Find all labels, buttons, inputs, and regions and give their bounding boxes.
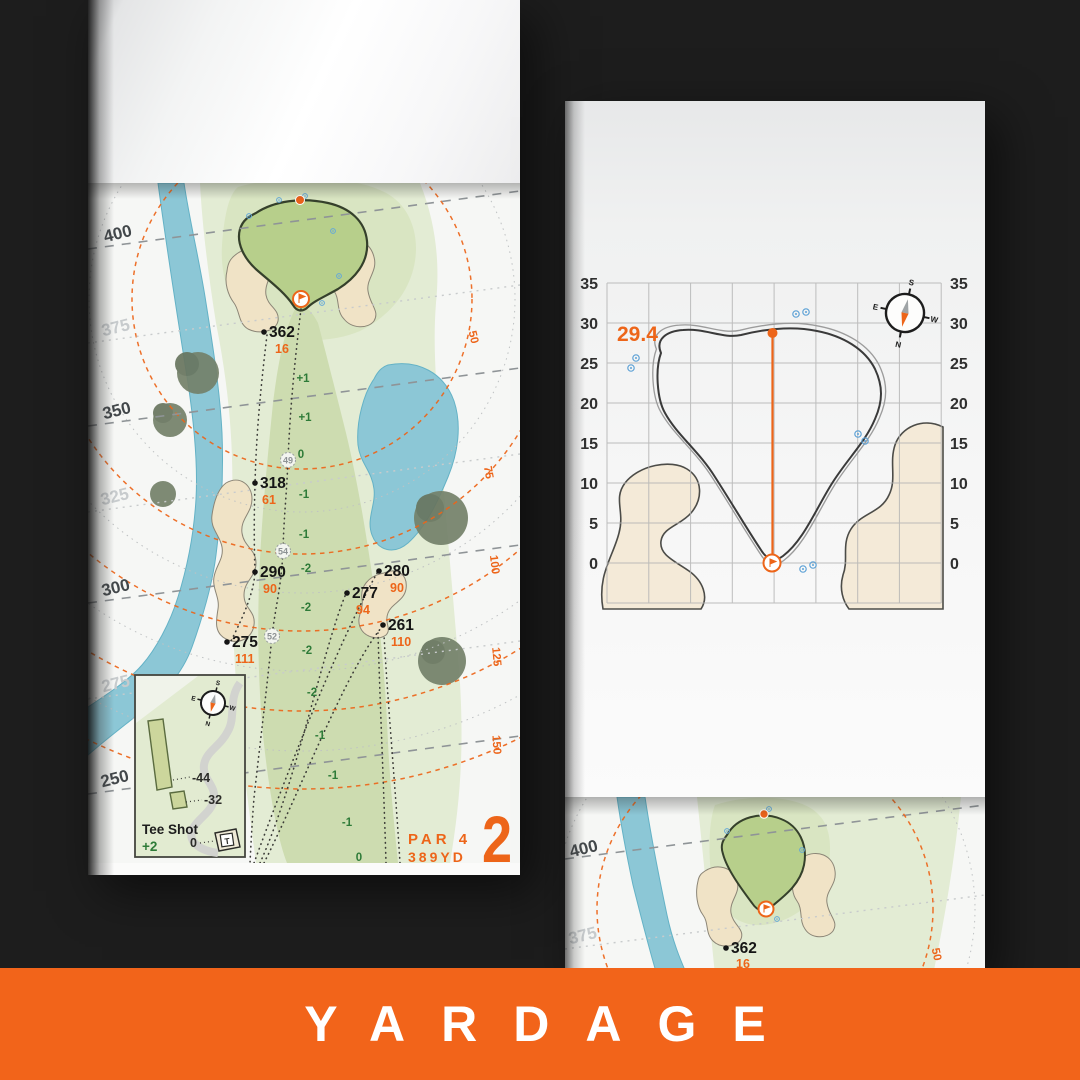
hole-map-page: 49 54 52 +1 +1 0 -1 -1 -2 -2 -2 -2 -1 -1… — [88, 183, 520, 875]
svg-text:0: 0 — [298, 449, 304, 461]
page-bottom-margin — [88, 863, 520, 875]
width-52: 52 — [267, 632, 277, 642]
svg-text:75: 75 — [481, 465, 495, 480]
svg-text:275: 275 — [232, 634, 258, 651]
svg-text:110: 110 — [391, 635, 411, 649]
svg-text:0: 0 — [356, 852, 362, 864]
svg-text:-1: -1 — [299, 489, 310, 501]
pin-marker — [759, 902, 774, 917]
svg-text:20: 20 — [580, 396, 598, 413]
svg-text:61: 61 — [262, 493, 276, 507]
svg-text:362: 362 — [731, 940, 757, 957]
inset-score: +2 — [142, 839, 157, 854]
flipped-blank-page — [88, 0, 520, 184]
svg-text:125: 125 — [489, 647, 503, 668]
svg-text:50: 50 — [466, 330, 481, 345]
svg-text:0: 0 — [589, 556, 598, 573]
svg-text:-1: -1 — [315, 730, 326, 742]
svg-text:150: 150 — [489, 735, 502, 755]
axis-labels-left: 3530 2520 1510 50 — [580, 276, 598, 573]
inset-title: Tee Shot — [142, 822, 199, 837]
svg-text:362: 362 — [269, 324, 295, 341]
svg-text:10: 10 — [580, 476, 598, 493]
svg-text:-1: -1 — [342, 817, 353, 829]
chart-compass: S N E W — [865, 271, 946, 356]
svg-text:-2: -2 — [302, 645, 312, 657]
green-depth-chart: 3530 2520 1510 50 3530 2520 1510 50 — [565, 101, 985, 797]
svg-text:290: 290 — [260, 564, 286, 581]
svg-text:30: 30 — [580, 316, 598, 333]
svg-text:-2: -2 — [307, 687, 317, 699]
svg-text:-2: -2 — [301, 602, 311, 614]
tee-box-small — [170, 791, 187, 809]
svg-text:261: 261 — [388, 617, 414, 634]
hole-map: 49 54 52 +1 +1 0 -1 -1 -2 -2 -2 -2 -1 -1… — [88, 183, 520, 875]
svg-text:+1: +1 — [298, 412, 312, 424]
svg-text:10: 10 — [950, 476, 968, 493]
axis-labels-right: 3530 2520 1510 50 — [950, 276, 968, 573]
svg-text:280: 280 — [384, 563, 410, 580]
ring-labels: 50 75 100 125 150 — [466, 330, 503, 755]
svg-text:-2: -2 — [301, 563, 311, 575]
svg-text:N: N — [894, 340, 902, 350]
svg-text:-1: -1 — [328, 770, 339, 782]
inset-zero: 0 — [190, 836, 197, 850]
banner-label: YARDAGE — [268, 995, 801, 1053]
svg-text:90: 90 — [390, 581, 404, 595]
next-hole-page: 362 16 400 375 50 — [565, 797, 985, 975]
svg-text:94: 94 — [356, 603, 370, 617]
inset-carry-44: -44 — [192, 771, 210, 785]
width-54: 54 — [278, 547, 288, 557]
svg-text:35: 35 — [950, 276, 968, 293]
svg-text:35: 35 — [580, 276, 598, 293]
svg-text:5: 5 — [950, 516, 959, 533]
svg-text:300: 300 — [100, 575, 132, 600]
svg-text:5: 5 — [589, 516, 598, 533]
product-image: 49 54 52 +1 +1 0 -1 -1 -2 -2 -2 -2 -1 -1… — [0, 0, 1080, 1080]
svg-text:325: 325 — [99, 484, 131, 509]
next-hole-map: 362 16 400 375 50 — [565, 797, 985, 975]
yardage-banner: YARDAGE — [0, 968, 1080, 1080]
svg-text:+1: +1 — [296, 373, 310, 385]
svg-text:400: 400 — [102, 221, 134, 246]
svg-text:15: 15 — [950, 436, 968, 453]
svg-text:277: 277 — [352, 585, 378, 602]
inset-carry-32: -32 — [204, 793, 222, 807]
svg-text:111: 111 — [235, 652, 255, 666]
tee-marker: T — [215, 829, 240, 851]
svg-text:20: 20 — [950, 396, 968, 413]
right-yardage-book: 3530 2520 1510 50 3530 2520 1510 50 — [565, 101, 985, 975]
svg-text:318: 318 — [260, 475, 286, 492]
pin-marker — [293, 291, 309, 307]
svg-text:90: 90 — [263, 582, 277, 596]
svg-text:E: E — [872, 302, 880, 312]
svg-text:25: 25 — [580, 356, 598, 373]
svg-text:350: 350 — [101, 398, 133, 423]
svg-text:375: 375 — [100, 315, 132, 340]
fold-shadow — [88, 183, 520, 199]
hole-yardage: 389YD — [408, 849, 466, 865]
river — [88, 183, 223, 755]
tee-shot-inset: S N E W -44 -32 Tee Shot +2 0 T — [135, 675, 245, 857]
left-yardage-book: 49 54 52 +1 +1 0 -1 -1 -2 -2 -2 -2 -1 -1… — [88, 0, 520, 875]
svg-text:-1: -1 — [299, 529, 310, 541]
svg-text:250: 250 — [99, 766, 131, 791]
depth-value: 29.4 — [617, 323, 658, 346]
svg-text:16: 16 — [275, 342, 289, 356]
green-chart-page: 3530 2520 1510 50 3530 2520 1510 50 — [565, 101, 985, 798]
hole-par: PAR 4 — [408, 831, 471, 848]
svg-text:30: 30 — [950, 316, 968, 333]
depth-line — [764, 328, 781, 572]
width-49: 49 — [283, 456, 293, 466]
svg-text:0: 0 — [950, 556, 959, 573]
svg-text:100: 100 — [487, 554, 501, 575]
fold-shadow — [565, 797, 985, 815]
svg-text:15: 15 — [580, 436, 598, 453]
svg-text:25: 25 — [950, 356, 968, 373]
